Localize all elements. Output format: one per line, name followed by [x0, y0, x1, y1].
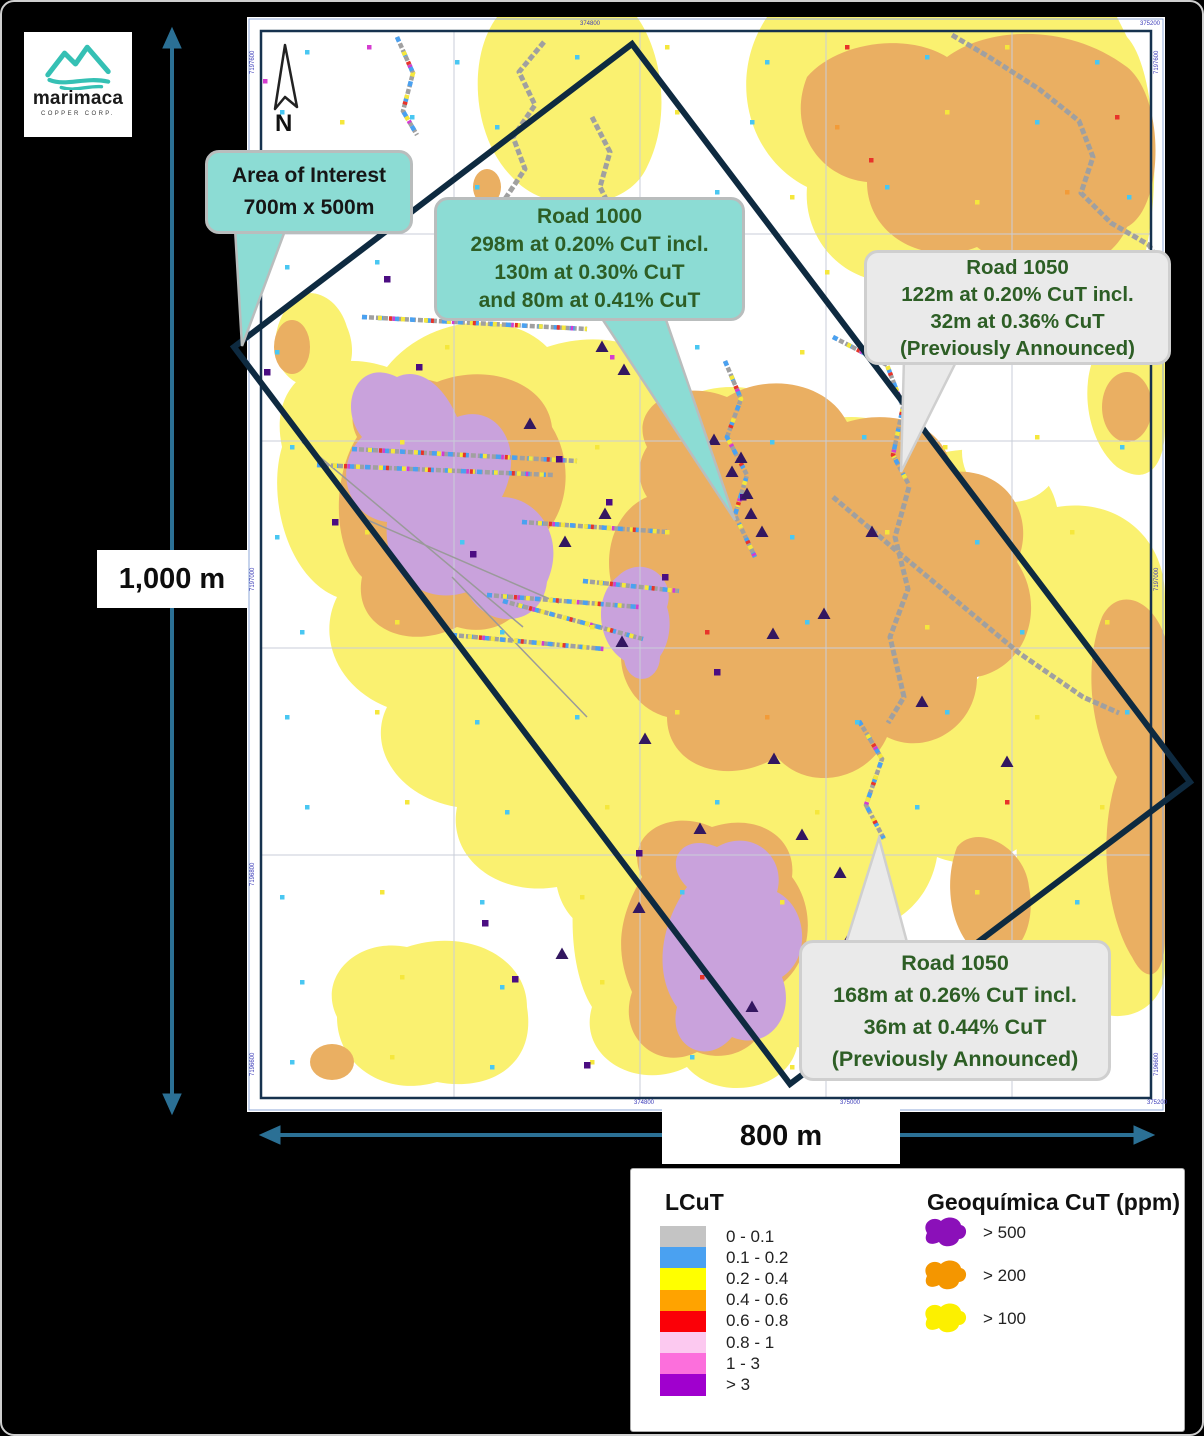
callout-line: Road 1050 [867, 254, 1168, 281]
marimaca-logo: marimaca COPPER CORP. [24, 32, 132, 137]
legend-swatch [660, 1353, 706, 1374]
callout-line: and 80m at 0.41% CuT [437, 287, 742, 315]
coordinate-label: 375200 [1147, 1100, 1167, 1106]
legend-swatch [660, 1268, 706, 1289]
legend-row: 0.2 - 0.4 [660, 1268, 788, 1289]
legend-row: > 200 [919, 1258, 1026, 1294]
callout-line: Road 1000 [437, 203, 742, 231]
callout-line: (Previously Announced) [802, 1043, 1108, 1075]
callout-line: 122m at 0.20% CuT incl. [867, 281, 1168, 308]
legend-row: 0.4 - 0.6 [660, 1290, 788, 1311]
lcut-legend: 0 - 0.1 0.1 - 0.2 0.2 - 0.4 0.4 - 0.6 0.… [660, 1226, 788, 1396]
blob-swatch [919, 1301, 969, 1337]
legend-panel: LCuT 0 - 0.1 0.1 - 0.2 0.2 - 0.4 0.4 - 0… [630, 1168, 1185, 1432]
logo-subtitle: COPPER CORP. [41, 111, 115, 117]
callout-area-of-interest: Area of Interest 700m x 500m [205, 150, 413, 234]
coordinate-label: 7197600 [250, 51, 256, 74]
callout-line: 700m x 500m [208, 192, 410, 224]
legend-swatch [660, 1332, 706, 1353]
legend-row: 0 - 0.1 [660, 1226, 788, 1247]
callout-line: 130m at 0.30% CuT [437, 259, 742, 287]
blob-swatch [919, 1215, 969, 1251]
callout-road-1050-bottom: Road 1050 168m at 0.26% CuT incl. 36m at… [799, 940, 1111, 1081]
legend-row: 0.6 - 0.8 [660, 1311, 788, 1332]
coordinate-label: 7196600 [1154, 1053, 1160, 1076]
coordinate-label: 375000 [840, 1100, 860, 1106]
legend-swatch [660, 1226, 706, 1247]
legend-row: 1 - 3 [660, 1353, 788, 1374]
callout-line: Area of Interest [208, 160, 410, 192]
figure-canvas: marimaca COPPER CORP. [0, 0, 1204, 1436]
legend-row: 0.8 - 1 [660, 1332, 788, 1353]
coordinate-label: 7196800 [250, 863, 256, 886]
legend-row: > 100 [919, 1301, 1026, 1337]
geoquimica-legend-title: Geoquímica CuT (ppm) [927, 1189, 1180, 1216]
callout-line: 168m at 0.26% CuT incl. [802, 979, 1108, 1011]
callout-line: Road 1050 [802, 947, 1108, 979]
logo-wordmark: marimaca [33, 90, 123, 108]
coordinate-label: 374800 [580, 21, 600, 27]
horizontal-scale-label: 800 m [662, 1108, 900, 1164]
legend-swatch [660, 1290, 706, 1311]
coordinate-label: 374800 [634, 1100, 654, 1106]
mountain-icon [35, 38, 121, 90]
legend-swatch [660, 1374, 706, 1395]
callout-line: 298m at 0.20% CuT incl. [437, 231, 742, 259]
coordinate-label: 7196600 [250, 1053, 256, 1076]
legend-swatch [660, 1247, 706, 1268]
coordinate-label: 7197600 [1154, 51, 1160, 74]
coordinate-label: 375200 [1140, 21, 1160, 27]
callout-line: 32m at 0.36% CuT [867, 308, 1168, 335]
legend-row: > 500 [919, 1215, 1026, 1251]
legend-swatch [660, 1311, 706, 1332]
coordinate-label: 7197000 [1154, 568, 1160, 591]
lcut-legend-title: LCuT [665, 1189, 724, 1216]
vertical-scale-label: 1,000 m [97, 550, 247, 608]
north-arrow-icon: N [275, 45, 297, 137]
legend-row: 0.1 - 0.2 [660, 1247, 788, 1268]
callout-line: 36m at 0.44% CuT [802, 1011, 1108, 1043]
callout-road-1050-top: Road 1050 122m at 0.20% CuT incl. 32m at… [864, 250, 1171, 365]
north-label: N [275, 110, 292, 137]
callout-road-1000: Road 1000 298m at 0.20% CuT incl. 130m a… [434, 197, 745, 321]
legend-row: > 3 [660, 1374, 788, 1395]
blob-swatch [919, 1258, 969, 1294]
callout-line: (Previously Announced) [867, 335, 1168, 362]
coordinate-label: 7197000 [250, 568, 256, 591]
